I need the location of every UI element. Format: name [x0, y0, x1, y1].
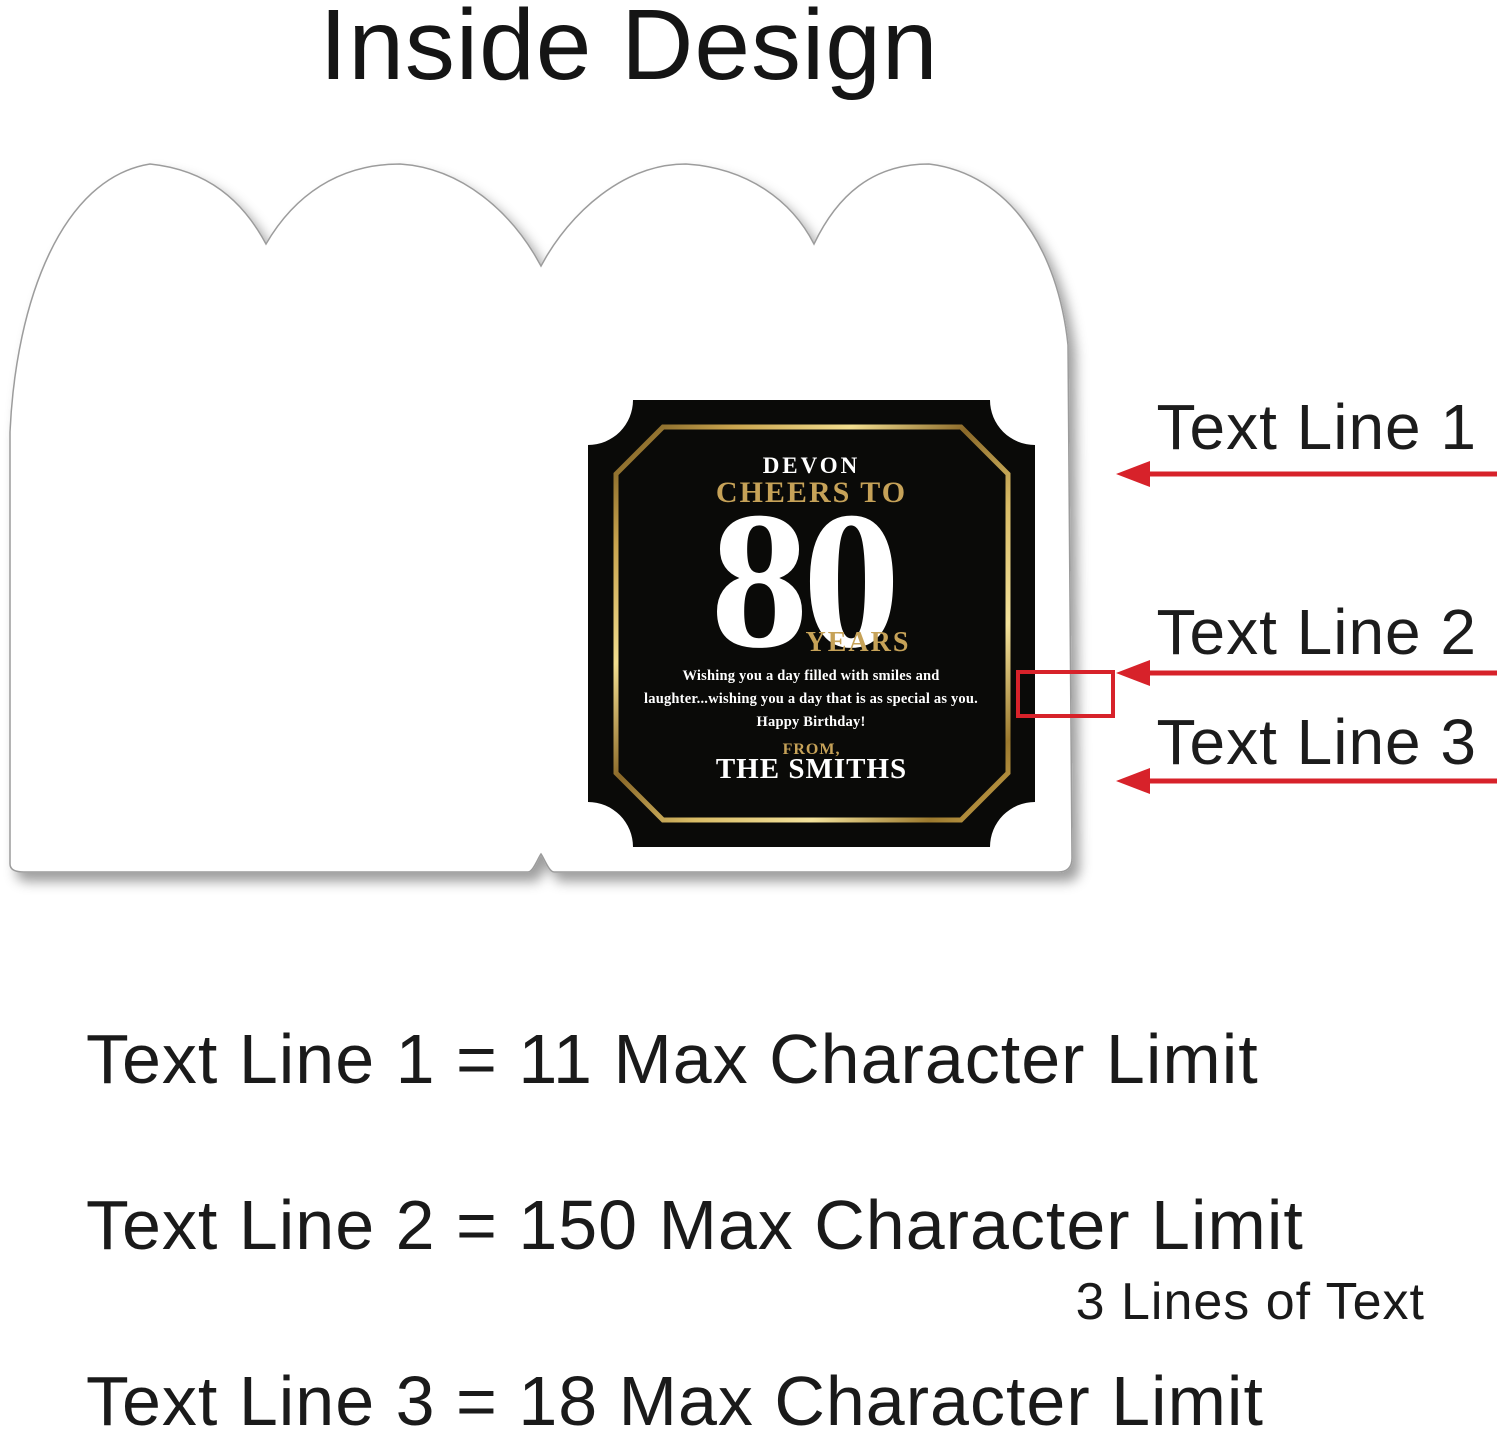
- plaque-message: Wishing you a day filled with smiles and…: [611, 665, 1011, 734]
- text-line-2-label: Text Line 2: [1156, 596, 1477, 668]
- plaque-age-suffix: YEARS: [768, 627, 948, 659]
- plaque-text-block: DEVON CHEERS TO 80 YEARS Wishing you a d…: [588, 400, 1035, 847]
- limit-text-line-1: Text Line 1 = 11 Max Character Limit: [86, 1019, 1259, 1099]
- text-line-3-label: Text Line 3: [1156, 706, 1477, 778]
- text-line-1-arrow: [1116, 461, 1497, 487]
- plaque-message-line-2: laughter...wishing you a day that is as …: [611, 688, 1011, 711]
- limit-text-line-3: Text Line 3 = 18 Max Character Limit: [86, 1361, 1264, 1441]
- text-line-1-label: Text Line 1: [1156, 391, 1477, 463]
- plaque-message-line-3: Happy Birthday!: [611, 711, 1011, 734]
- product-info-graphic: Inside Design: [0, 0, 1500, 1441]
- limit-text-line-2-note: 3 Lines of Text: [1076, 1272, 1425, 1332]
- plaque-message-line-1: Wishing you a day filled with smiles and: [611, 665, 1011, 688]
- limit-text-line-2: Text Line 2 = 150 Max Character Limit: [86, 1185, 1304, 1265]
- plaque-from-name: THE SMITHS: [588, 752, 1035, 786]
